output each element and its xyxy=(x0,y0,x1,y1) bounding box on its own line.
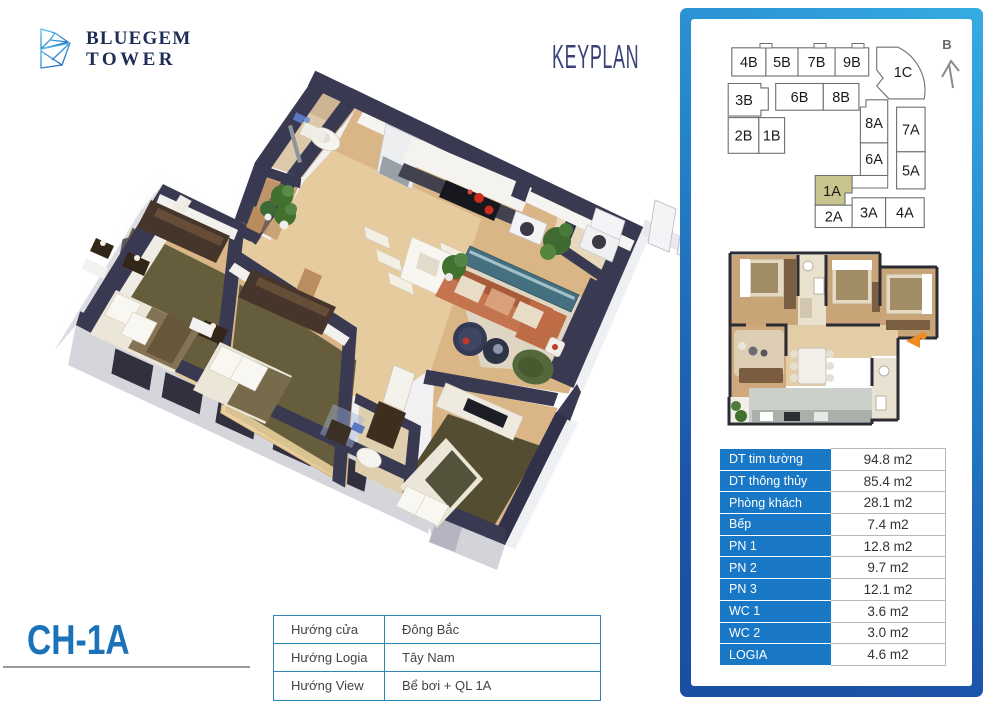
svg-text:6B: 6B xyxy=(791,90,809,106)
svg-text:7B: 7B xyxy=(808,55,826,71)
svg-text:4B: 4B xyxy=(740,55,758,71)
svg-text:1C: 1C xyxy=(894,65,913,81)
svg-text:4A: 4A xyxy=(896,206,914,222)
svg-text:3A: 3A xyxy=(860,206,878,222)
svg-text:5A: 5A xyxy=(902,163,920,179)
svg-text:5B: 5B xyxy=(773,55,791,71)
svg-text:7A: 7A xyxy=(902,123,920,139)
svg-text:8B: 8B xyxy=(832,90,850,106)
svg-text:6A: 6A xyxy=(865,152,883,168)
svg-text:B: B xyxy=(942,37,951,52)
svg-text:8A: 8A xyxy=(865,116,883,132)
svg-text:1A: 1A xyxy=(823,184,841,200)
svg-text:3B: 3B xyxy=(735,93,753,109)
svg-text:2A: 2A xyxy=(825,209,843,225)
svg-text:2B: 2B xyxy=(735,128,753,144)
svg-text:9B: 9B xyxy=(843,55,861,71)
svg-text:1B: 1B xyxy=(763,128,781,144)
